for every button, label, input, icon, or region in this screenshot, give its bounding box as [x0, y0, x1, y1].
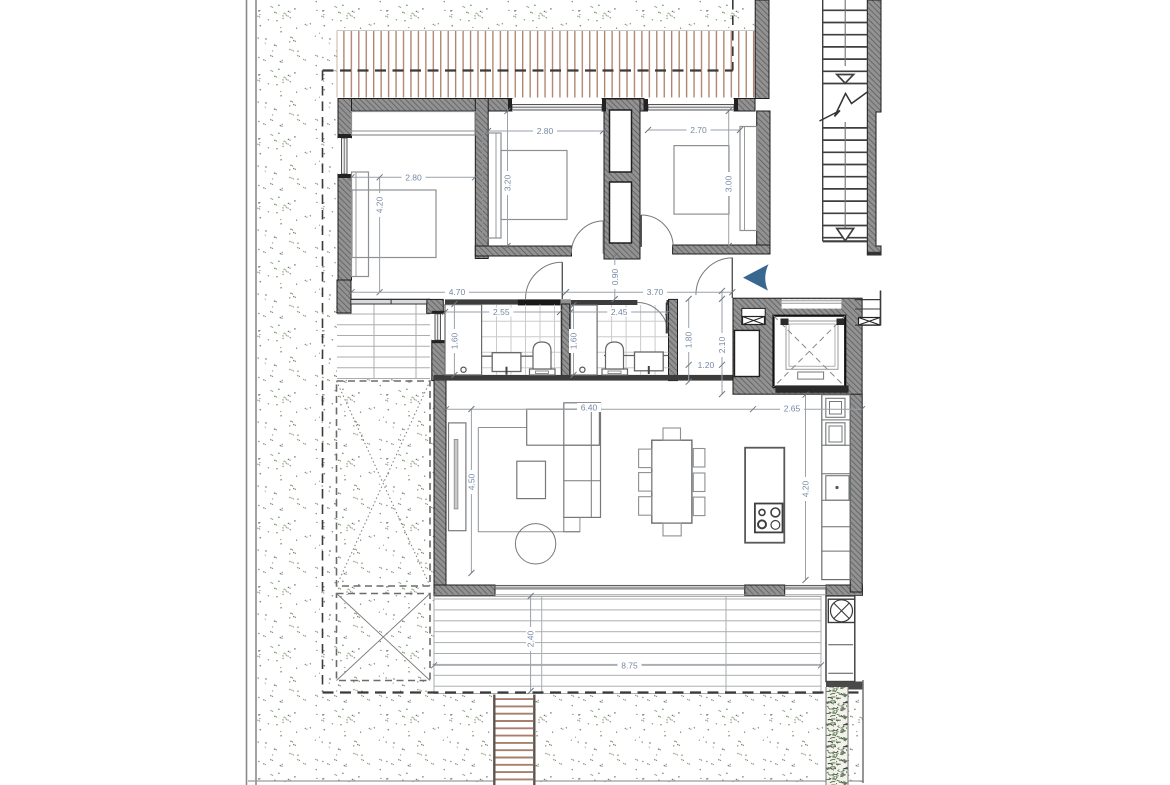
- svg-text:3.20: 3.20: [503, 174, 513, 191]
- svg-text:3.70: 3.70: [647, 287, 664, 297]
- svg-text:2.70: 2.70: [690, 125, 707, 135]
- svg-text:1.80: 1.80: [684, 331, 694, 348]
- svg-text:2.55: 2.55: [493, 307, 510, 317]
- svg-text:2.40: 2.40: [526, 630, 536, 647]
- svg-text:1.20: 1.20: [698, 360, 715, 370]
- svg-text:3.00: 3.00: [724, 175, 734, 192]
- svg-text:4.50: 4.50: [466, 473, 476, 490]
- svg-text:2.80: 2.80: [537, 126, 554, 136]
- svg-text:1.60: 1.60: [449, 332, 459, 349]
- svg-text:1.60: 1.60: [569, 332, 579, 349]
- svg-text:2.80: 2.80: [405, 172, 422, 182]
- svg-text:4.20: 4.20: [375, 196, 385, 213]
- svg-text:2.65: 2.65: [784, 404, 801, 414]
- svg-text:2.10: 2.10: [717, 336, 727, 353]
- svg-text:4.20: 4.20: [801, 480, 811, 497]
- svg-text:0.90: 0.90: [610, 268, 620, 285]
- svg-text:2.45: 2.45: [611, 307, 628, 317]
- svg-text:4.70: 4.70: [449, 287, 466, 297]
- svg-text:8.75: 8.75: [621, 660, 638, 670]
- svg-text:6.40: 6.40: [581, 403, 598, 413]
